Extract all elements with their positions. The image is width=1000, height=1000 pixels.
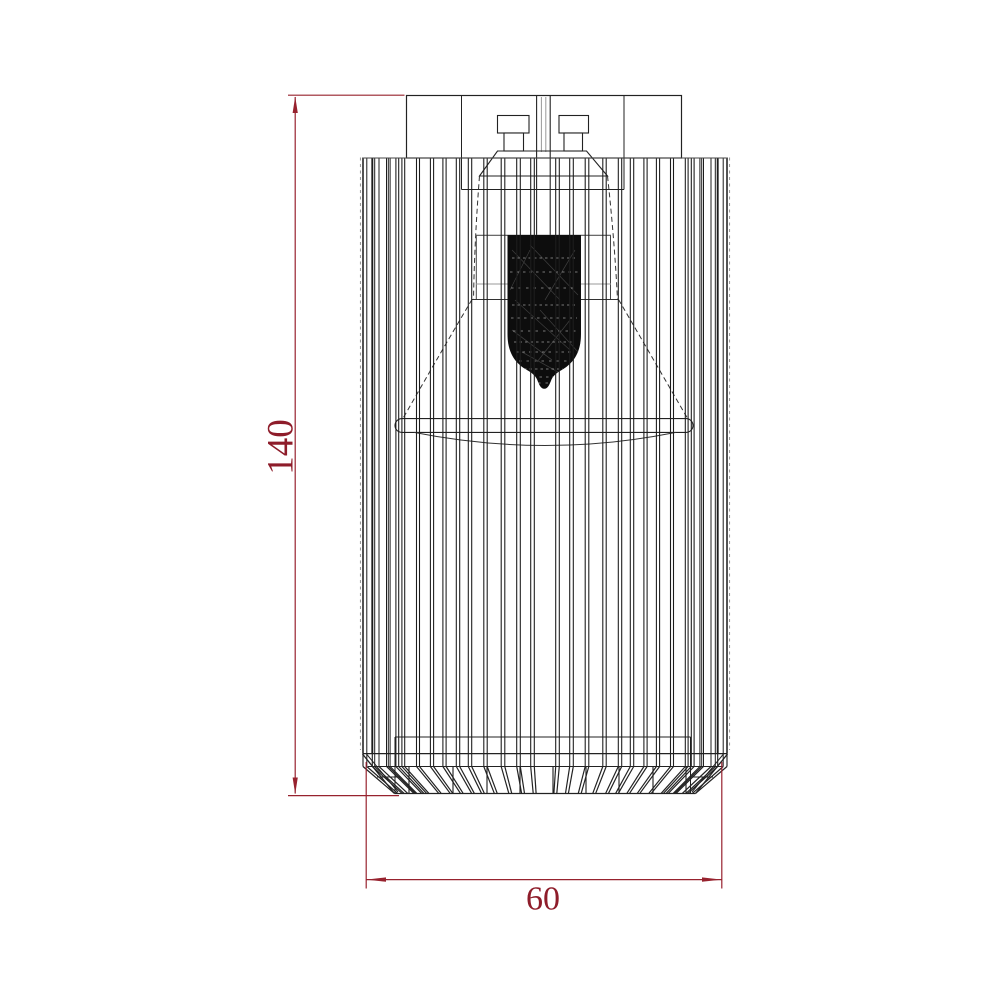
svg-text:60: 60 [526, 881, 560, 918]
svg-text:140: 140 [260, 419, 301, 475]
